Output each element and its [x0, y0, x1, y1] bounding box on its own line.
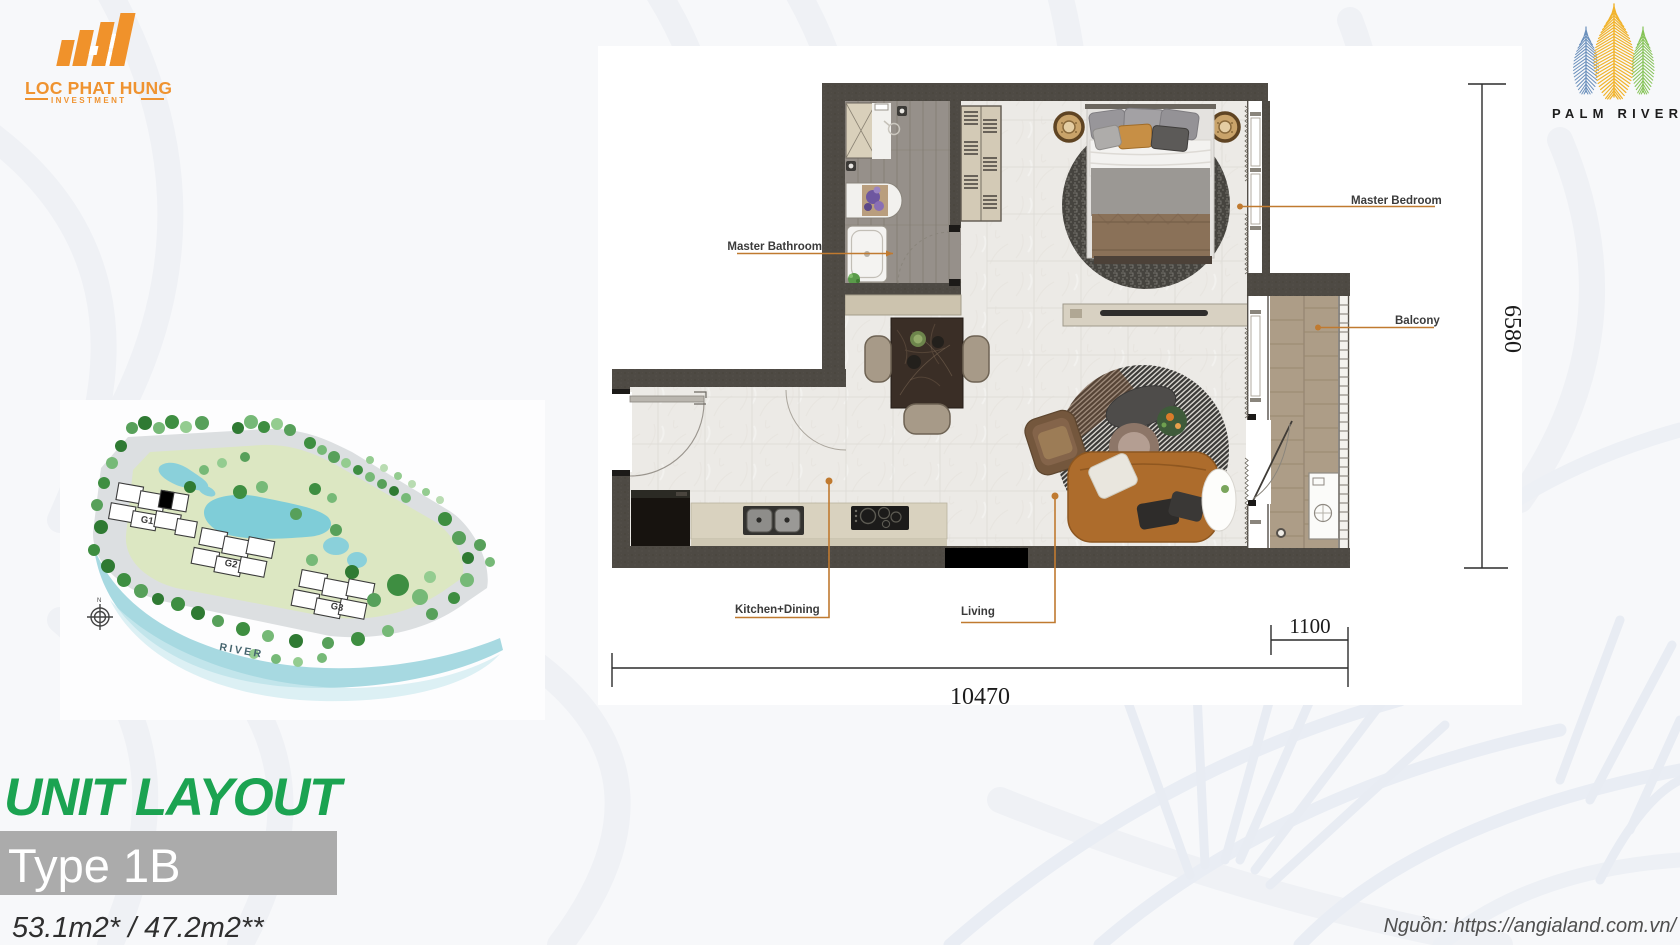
svg-text:INVESTMENT: INVESTMENT — [51, 96, 127, 103]
svg-text:Kitchen+Dining: Kitchen+Dining — [735, 604, 820, 616]
svg-text:Master Bathroom: Master Bathroom — [727, 241, 822, 253]
svg-text:Living: Living — [961, 606, 995, 618]
svg-text:N: N — [97, 598, 101, 604]
svg-text:10470: 10470 — [950, 684, 1010, 705]
svg-text:1100: 1100 — [1289, 614, 1330, 638]
svg-text:6580: 6580 — [1499, 305, 1522, 353]
svg-text:Master Bedroom: Master Bedroom — [1351, 195, 1442, 207]
svg-text:LOC PHAT HUNG: LOC PHAT HUNG — [25, 78, 172, 98]
svg-text:PALM RIVER: PALM RIVER — [1552, 106, 1680, 121]
svg-text:Balcony: Balcony — [1395, 315, 1440, 327]
